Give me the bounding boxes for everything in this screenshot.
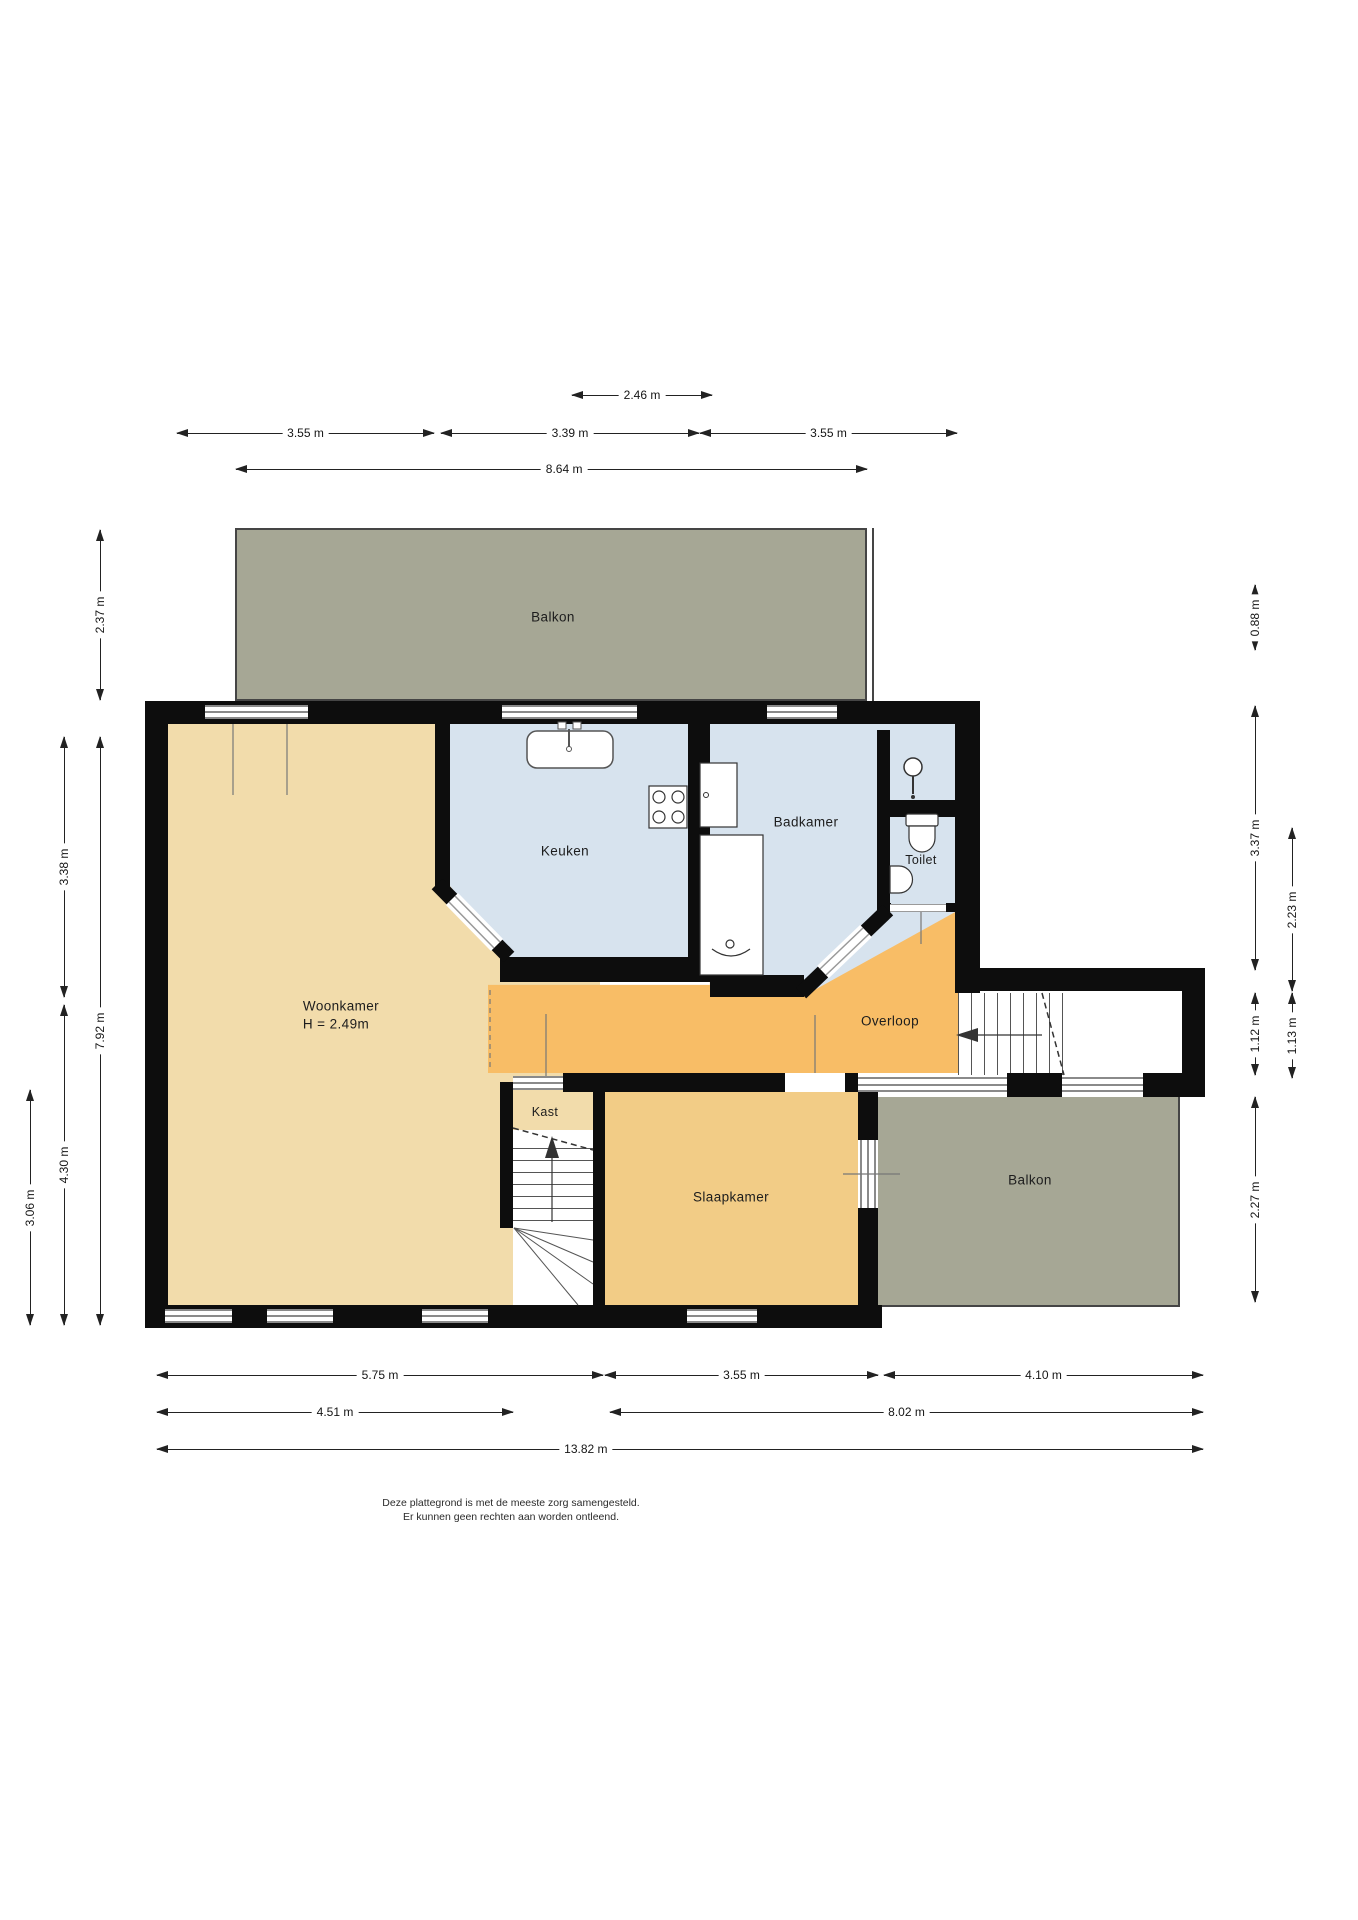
wall-left (145, 701, 168, 1328)
wall-stairhall-north (980, 968, 1205, 991)
dim-3-39-top: 3.39 m (441, 426, 699, 440)
wall-kitchen-west (435, 724, 450, 890)
wall-sill-east (1143, 1073, 1205, 1097)
stair-treads-closet (513, 1148, 593, 1230)
window-living-south-1 (165, 1309, 232, 1323)
dim-3-55-top-right: 3.55 m (700, 426, 957, 440)
window-closet-top (513, 1076, 563, 1090)
room-label-kast: Kast (532, 1105, 559, 1119)
wall-bathroom-south (710, 975, 804, 997)
wall-bedroom-west (593, 1092, 605, 1305)
window-bathroom (767, 705, 837, 719)
balcony-top-railing (872, 528, 874, 701)
dim-1-13: 1.13 m (1285, 993, 1299, 1078)
room-label-slaapkamer: Slaapkamer (693, 1190, 769, 1205)
dim-4-51: 4.51 m (157, 1405, 513, 1419)
wall-toilet-door-west (877, 903, 891, 912)
window-living-south-3 (422, 1309, 488, 1323)
disclaimer-line-2: Er kunnen geen rechten aan worden ontlee… (382, 1510, 639, 1524)
dim-8-02: 8.02 m (610, 1405, 1203, 1419)
dim-3-38: 3.38 m (57, 737, 71, 997)
dim-13-82: 13.82 m (157, 1442, 1203, 1456)
room-label-keuken: Keuken (541, 844, 589, 859)
door-toilet (890, 904, 946, 912)
dim-4-10: 4.10 m (884, 1368, 1203, 1382)
dim-1-12: 1.12 m (1248, 993, 1262, 1075)
door-bedroom-gap (785, 1074, 845, 1091)
dim-2-27: 2.27 m (1248, 1097, 1262, 1302)
dim-3-06: 3.06 m (23, 1090, 37, 1325)
dim-4-30: 4.30 m (57, 1005, 71, 1325)
wall-sill-mid (1007, 1073, 1062, 1097)
wall-block-east (955, 701, 980, 993)
wall-bedroom-door-stub (845, 1073, 858, 1092)
wall-kitchen-south (500, 957, 690, 982)
wall-bottom (145, 1305, 882, 1328)
dim-5-75: 5.75 m (157, 1368, 603, 1382)
dim-2-37: 2.37 m (93, 530, 107, 700)
wall-bedroom-east-bottom (858, 1208, 878, 1305)
disclaimer-line-1: Deze plattegrond is met de meeste zorg s… (382, 1496, 639, 1510)
dim-3-55-top-left: 3.55 m (177, 426, 434, 440)
wall-closet-west (500, 1082, 513, 1228)
stair-treads-hall (958, 993, 1064, 1075)
dim-7-92: 7.92 m (93, 737, 107, 1325)
room-label-balkon-top: Balkon (531, 610, 575, 625)
window-bedroom-south (687, 1309, 757, 1323)
window-living-south-2 (267, 1309, 333, 1323)
dim-2-46: 2.46 m (572, 388, 712, 402)
kitchen-floor (450, 724, 690, 957)
dim-2-23: 2.23 m (1285, 828, 1299, 991)
window-stairhall-balcony (1062, 1077, 1143, 1092)
wall-closet-northeast (563, 1073, 605, 1092)
room-label-toilet: Toilet (905, 853, 937, 867)
room-label-balkon-right: Balkon (1008, 1173, 1052, 1188)
dim-8-64: 8.64 m (236, 462, 867, 476)
balcony-right-floor (878, 1097, 1180, 1307)
wall-bedroom-east-top (858, 1092, 878, 1140)
room-label-badkamer: Badkamer (774, 815, 839, 830)
wall-toilet-west (877, 730, 890, 912)
room-height-note: H = 2.49m (303, 1017, 369, 1032)
window-bedroom-balcony (860, 1140, 876, 1208)
room-label-woonkamer: Woonkamer (303, 999, 379, 1014)
window-landing-balcony (858, 1077, 1007, 1092)
window-living-balcony (205, 705, 308, 719)
window-kitchen (502, 705, 637, 719)
wall-landing-south (598, 1073, 785, 1092)
wall-kitchen-east (688, 724, 710, 982)
floorplan: Balkon Keuken Badkamer Toilet Woonkamer … (0, 0, 1358, 1920)
dim-3-55-bottom: 3.55 m (605, 1368, 878, 1382)
disclaimer-text: Deze plattegrond is met de meeste zorg s… (382, 1496, 639, 1524)
dim-0-88: 0.88 m (1248, 585, 1262, 650)
dim-3-37: 3.37 m (1248, 706, 1262, 970)
room-label-overloop: Overloop (861, 1014, 919, 1029)
